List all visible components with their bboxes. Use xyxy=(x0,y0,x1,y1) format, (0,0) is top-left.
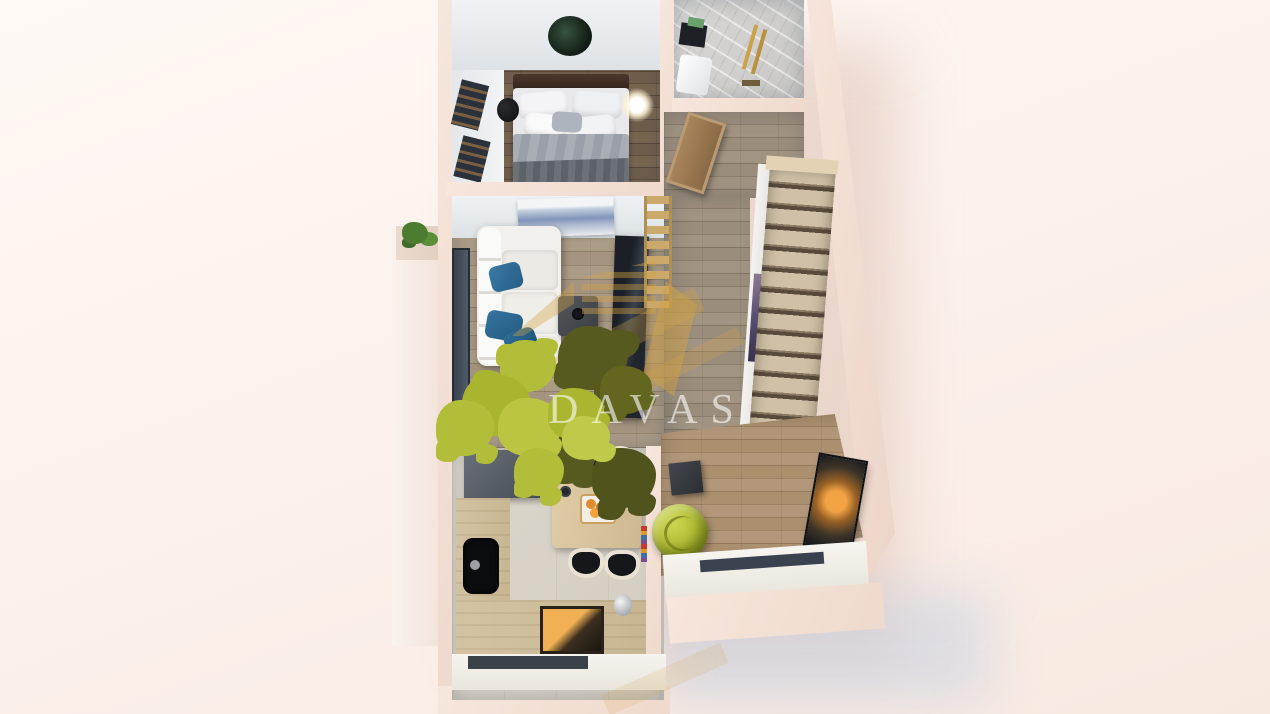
wall-bedroom-living xyxy=(446,182,666,196)
dining-chair xyxy=(604,550,640,580)
floor-lamp-icon xyxy=(620,88,654,122)
kitchen-sink xyxy=(463,538,499,594)
sink-faucet-icon xyxy=(470,560,480,570)
wall-bathroom-hall xyxy=(672,98,806,112)
side-table xyxy=(668,460,703,495)
round-wall-art xyxy=(548,16,592,56)
plate-icon xyxy=(560,486,571,497)
corridor-floor xyxy=(664,196,750,448)
book-strip xyxy=(641,526,647,562)
sofa-back-cushions xyxy=(479,228,501,364)
shower-drain xyxy=(742,80,760,86)
kitchen-window-glass xyxy=(468,656,588,669)
plant-icon xyxy=(402,222,428,244)
bed-pillow-accent xyxy=(551,111,582,133)
nightstand-stool xyxy=(497,98,519,122)
ladder-shelf-icon xyxy=(644,196,672,308)
vanity-sink xyxy=(676,54,713,96)
dining-chair xyxy=(568,548,604,578)
cooker-hood-cabinet xyxy=(464,450,542,498)
oven-with-glow xyxy=(540,606,604,654)
dining-chair xyxy=(566,448,602,478)
kettle-icon xyxy=(614,594,632,616)
plate-icon xyxy=(618,492,629,503)
fruit-bowl xyxy=(580,494,616,524)
living-window-wall xyxy=(452,248,470,422)
floor-plan-render: DAVAS xyxy=(0,0,1270,714)
coffee-table-decor xyxy=(572,308,584,320)
fruit-icon xyxy=(586,499,596,509)
dining-chair xyxy=(602,446,638,476)
